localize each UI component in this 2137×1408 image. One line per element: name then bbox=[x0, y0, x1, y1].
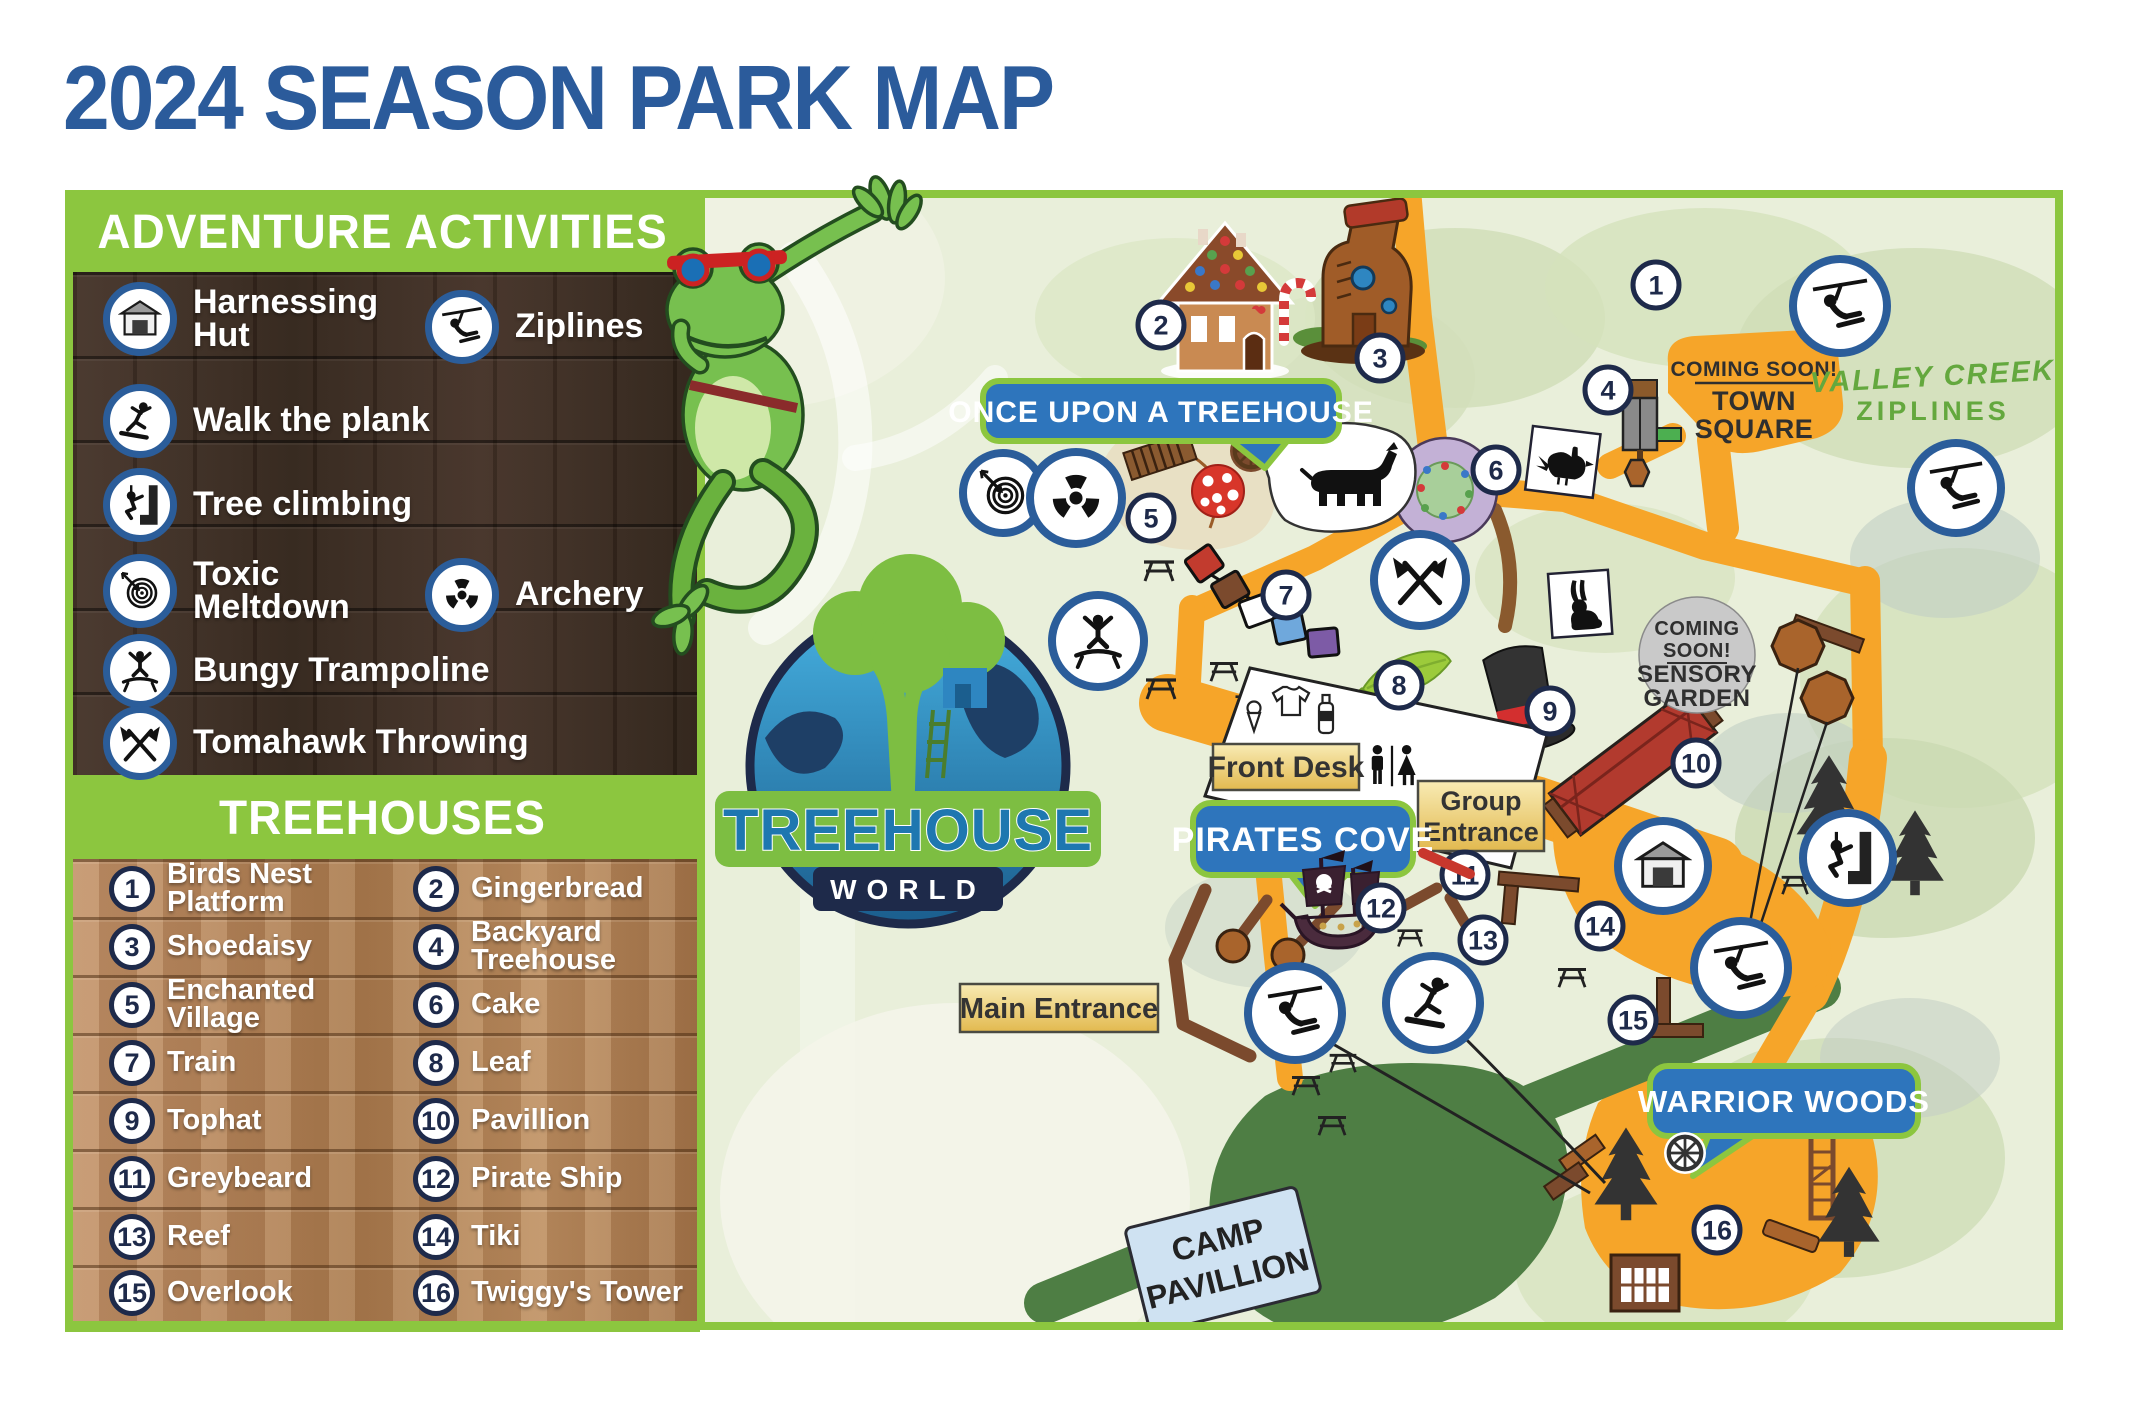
treehouse-item: 4Backyard Treehouse bbox=[413, 919, 661, 975]
svg-text:SOON!: SOON! bbox=[1663, 640, 1731, 662]
treehouse-item: 9Tophat bbox=[109, 1093, 262, 1149]
treehouse-item: 13Reef bbox=[109, 1209, 230, 1265]
treehouse-item: 12Pirate Ship bbox=[413, 1151, 623, 1207]
zipline-platform bbox=[1772, 620, 1824, 672]
svg-text:GARDEN: GARDEN bbox=[1643, 685, 1750, 712]
svg-text:1: 1 bbox=[1648, 271, 1663, 301]
coming-soon-sensory-garden: COMING SOON! SENSORY GARDEN bbox=[1637, 597, 1757, 713]
svg-text:2: 2 bbox=[1153, 311, 1168, 341]
page-title: 2024 SEASON PARK MAP bbox=[63, 46, 1053, 151]
svg-text:12: 12 bbox=[1366, 894, 1396, 924]
svg-text:ONCE UPON A TREEHOUSE: ONCE UPON A TREEHOUSE bbox=[948, 396, 1374, 429]
activity-bungy-trampoline: Bungy Trampoline bbox=[103, 634, 490, 708]
trampoline-icon bbox=[1052, 595, 1144, 687]
treehouse-item: 3Shoedaisy bbox=[109, 919, 312, 975]
zipline-icon bbox=[1911, 443, 2001, 533]
svg-text:SENSORY: SENSORY bbox=[1637, 661, 1757, 688]
svg-text:8: 8 bbox=[1391, 671, 1406, 701]
harnessing-hut-icon bbox=[1618, 821, 1708, 911]
map-marker-7: 7 bbox=[1263, 572, 1309, 618]
zipline-icon bbox=[1793, 259, 1887, 353]
activity-harnessing-hut: Harnessing Hut bbox=[103, 282, 373, 356]
svg-text:3: 3 bbox=[1372, 344, 1387, 374]
trampoline-icon bbox=[103, 634, 177, 708]
svg-text:Group: Group bbox=[1441, 786, 1522, 816]
activity-tomahawk-throwing: Tomahawk Throwing bbox=[103, 706, 529, 780]
map-marker-12: 12 bbox=[1358, 885, 1404, 931]
activity-walk-the-plank: Walk the plank bbox=[103, 384, 430, 458]
frog-mascot bbox=[585, 150, 935, 690]
map-marker-13: 13 bbox=[1460, 917, 1506, 963]
svg-text:ZIPLINES: ZIPLINES bbox=[1856, 396, 2010, 426]
treehouse-item: 15Overlook bbox=[109, 1265, 293, 1321]
zipline-icon bbox=[1694, 921, 1788, 1015]
map-marker-6: 6 bbox=[1473, 447, 1519, 493]
wagon-wheel-white bbox=[1664, 1132, 1706, 1174]
svg-text:5: 5 bbox=[1143, 504, 1158, 534]
treehouse-item: 10Pavillion bbox=[413, 1093, 590, 1149]
svg-text:13: 13 bbox=[1468, 926, 1498, 956]
radiation-icon bbox=[425, 558, 499, 632]
svg-text:COMING: COMING bbox=[1654, 618, 1739, 640]
map-marker-8: 8 bbox=[1376, 662, 1422, 708]
mushroom bbox=[1192, 465, 1244, 517]
map-marker-3: 3 bbox=[1357, 335, 1403, 381]
zipline-icon bbox=[425, 290, 499, 364]
activity-toxic-meltdown: Toxic Meltdown bbox=[103, 554, 353, 628]
treehouses-title: TREEHOUSES bbox=[219, 789, 546, 846]
treehouse-item: 11Greybeard bbox=[109, 1151, 312, 1207]
map-marker-4: 4 bbox=[1585, 367, 1631, 413]
svg-text:TOWN: TOWN bbox=[1712, 386, 1796, 416]
group-entrance-label: Group Entrance bbox=[1418, 781, 1544, 851]
treehouses-header: TREEHOUSES bbox=[65, 773, 700, 861]
window-cabin bbox=[1611, 1255, 1679, 1311]
walk-the-plank-icon bbox=[103, 384, 177, 458]
svg-text:Front Desk: Front Desk bbox=[1208, 751, 1365, 784]
svg-text:PIRATES COVE: PIRATES COVE bbox=[1172, 821, 1435, 859]
map-marker-5: 5 bbox=[1128, 495, 1174, 541]
tree-climbing-icon bbox=[1803, 813, 1893, 903]
main-entrance-label: Main Entrance bbox=[960, 984, 1158, 1032]
treehouse-item: 2Gingerbread bbox=[413, 861, 643, 917]
map-marker-15: 15 bbox=[1610, 997, 1656, 1043]
walk-the-plank-icon bbox=[1386, 956, 1480, 1050]
treehouse-item: 7Train bbox=[109, 1035, 236, 1091]
logo-world: WORLD bbox=[830, 874, 986, 905]
treehouse-item: 14Tiki bbox=[413, 1209, 520, 1265]
treehouse-item: 8Leaf bbox=[413, 1035, 531, 1091]
rabbit-pen bbox=[1548, 570, 1612, 638]
svg-text:SQUARE: SQUARE bbox=[1695, 414, 1814, 444]
map-marker-2: 2 bbox=[1138, 302, 1184, 348]
park-map-poster: 2024 SEASON PARK MAP ADVENTURE ACTIVITIE… bbox=[0, 0, 2137, 1408]
map-marker-16: 16 bbox=[1694, 1207, 1740, 1253]
treehouse-item: 1Birds Nest Platform bbox=[109, 861, 357, 917]
svg-text:16: 16 bbox=[1702, 1216, 1732, 1246]
svg-text:7: 7 bbox=[1278, 581, 1293, 611]
tree-climbing-icon bbox=[103, 468, 177, 542]
svg-text:Entrance: Entrance bbox=[1423, 817, 1539, 847]
map-marker-1: 1 bbox=[1633, 262, 1679, 308]
target-icon bbox=[103, 554, 177, 628]
svg-text:Main Entrance: Main Entrance bbox=[960, 993, 1158, 1025]
front-desk-label: Front Desk bbox=[1208, 744, 1365, 790]
svg-text:14: 14 bbox=[1585, 912, 1615, 942]
zipline-platform bbox=[1801, 672, 1853, 724]
adventure-activities-title: ADVENTURE ACTIVITIES bbox=[97, 203, 667, 260]
radiation-icon bbox=[1030, 452, 1122, 544]
tomahawk-icon bbox=[103, 706, 177, 780]
svg-text:9: 9 bbox=[1542, 697, 1557, 727]
treehouse-item: 5Enchanted Village bbox=[109, 977, 357, 1033]
map-marker-10: 10 bbox=[1673, 740, 1719, 786]
map-marker-9: 9 bbox=[1527, 688, 1573, 734]
activity-tree-climbing: Tree climbing bbox=[103, 468, 412, 542]
chicken-pen bbox=[1525, 426, 1600, 498]
tomahawk-icon bbox=[1374, 534, 1466, 626]
map-marker-14: 14 bbox=[1577, 903, 1623, 949]
svg-text:10: 10 bbox=[1681, 749, 1711, 779]
hut-icon bbox=[103, 282, 177, 356]
svg-text:WARRIOR WOODS: WARRIOR WOODS bbox=[1638, 1084, 1930, 1119]
svg-text:15: 15 bbox=[1618, 1006, 1648, 1036]
svg-text:4: 4 bbox=[1600, 376, 1615, 406]
logo-name: TREEHOUSE bbox=[723, 798, 1093, 863]
svg-text:6: 6 bbox=[1488, 456, 1503, 486]
zipline-icon bbox=[1248, 966, 1342, 1060]
treehouse-item: 6Cake bbox=[413, 977, 540, 1033]
treehouses-list: 1Birds Nest Platform 2Gingerbread 3Shoed… bbox=[73, 859, 700, 1321]
treehouse-item: 16Twiggy's Tower bbox=[413, 1265, 683, 1321]
